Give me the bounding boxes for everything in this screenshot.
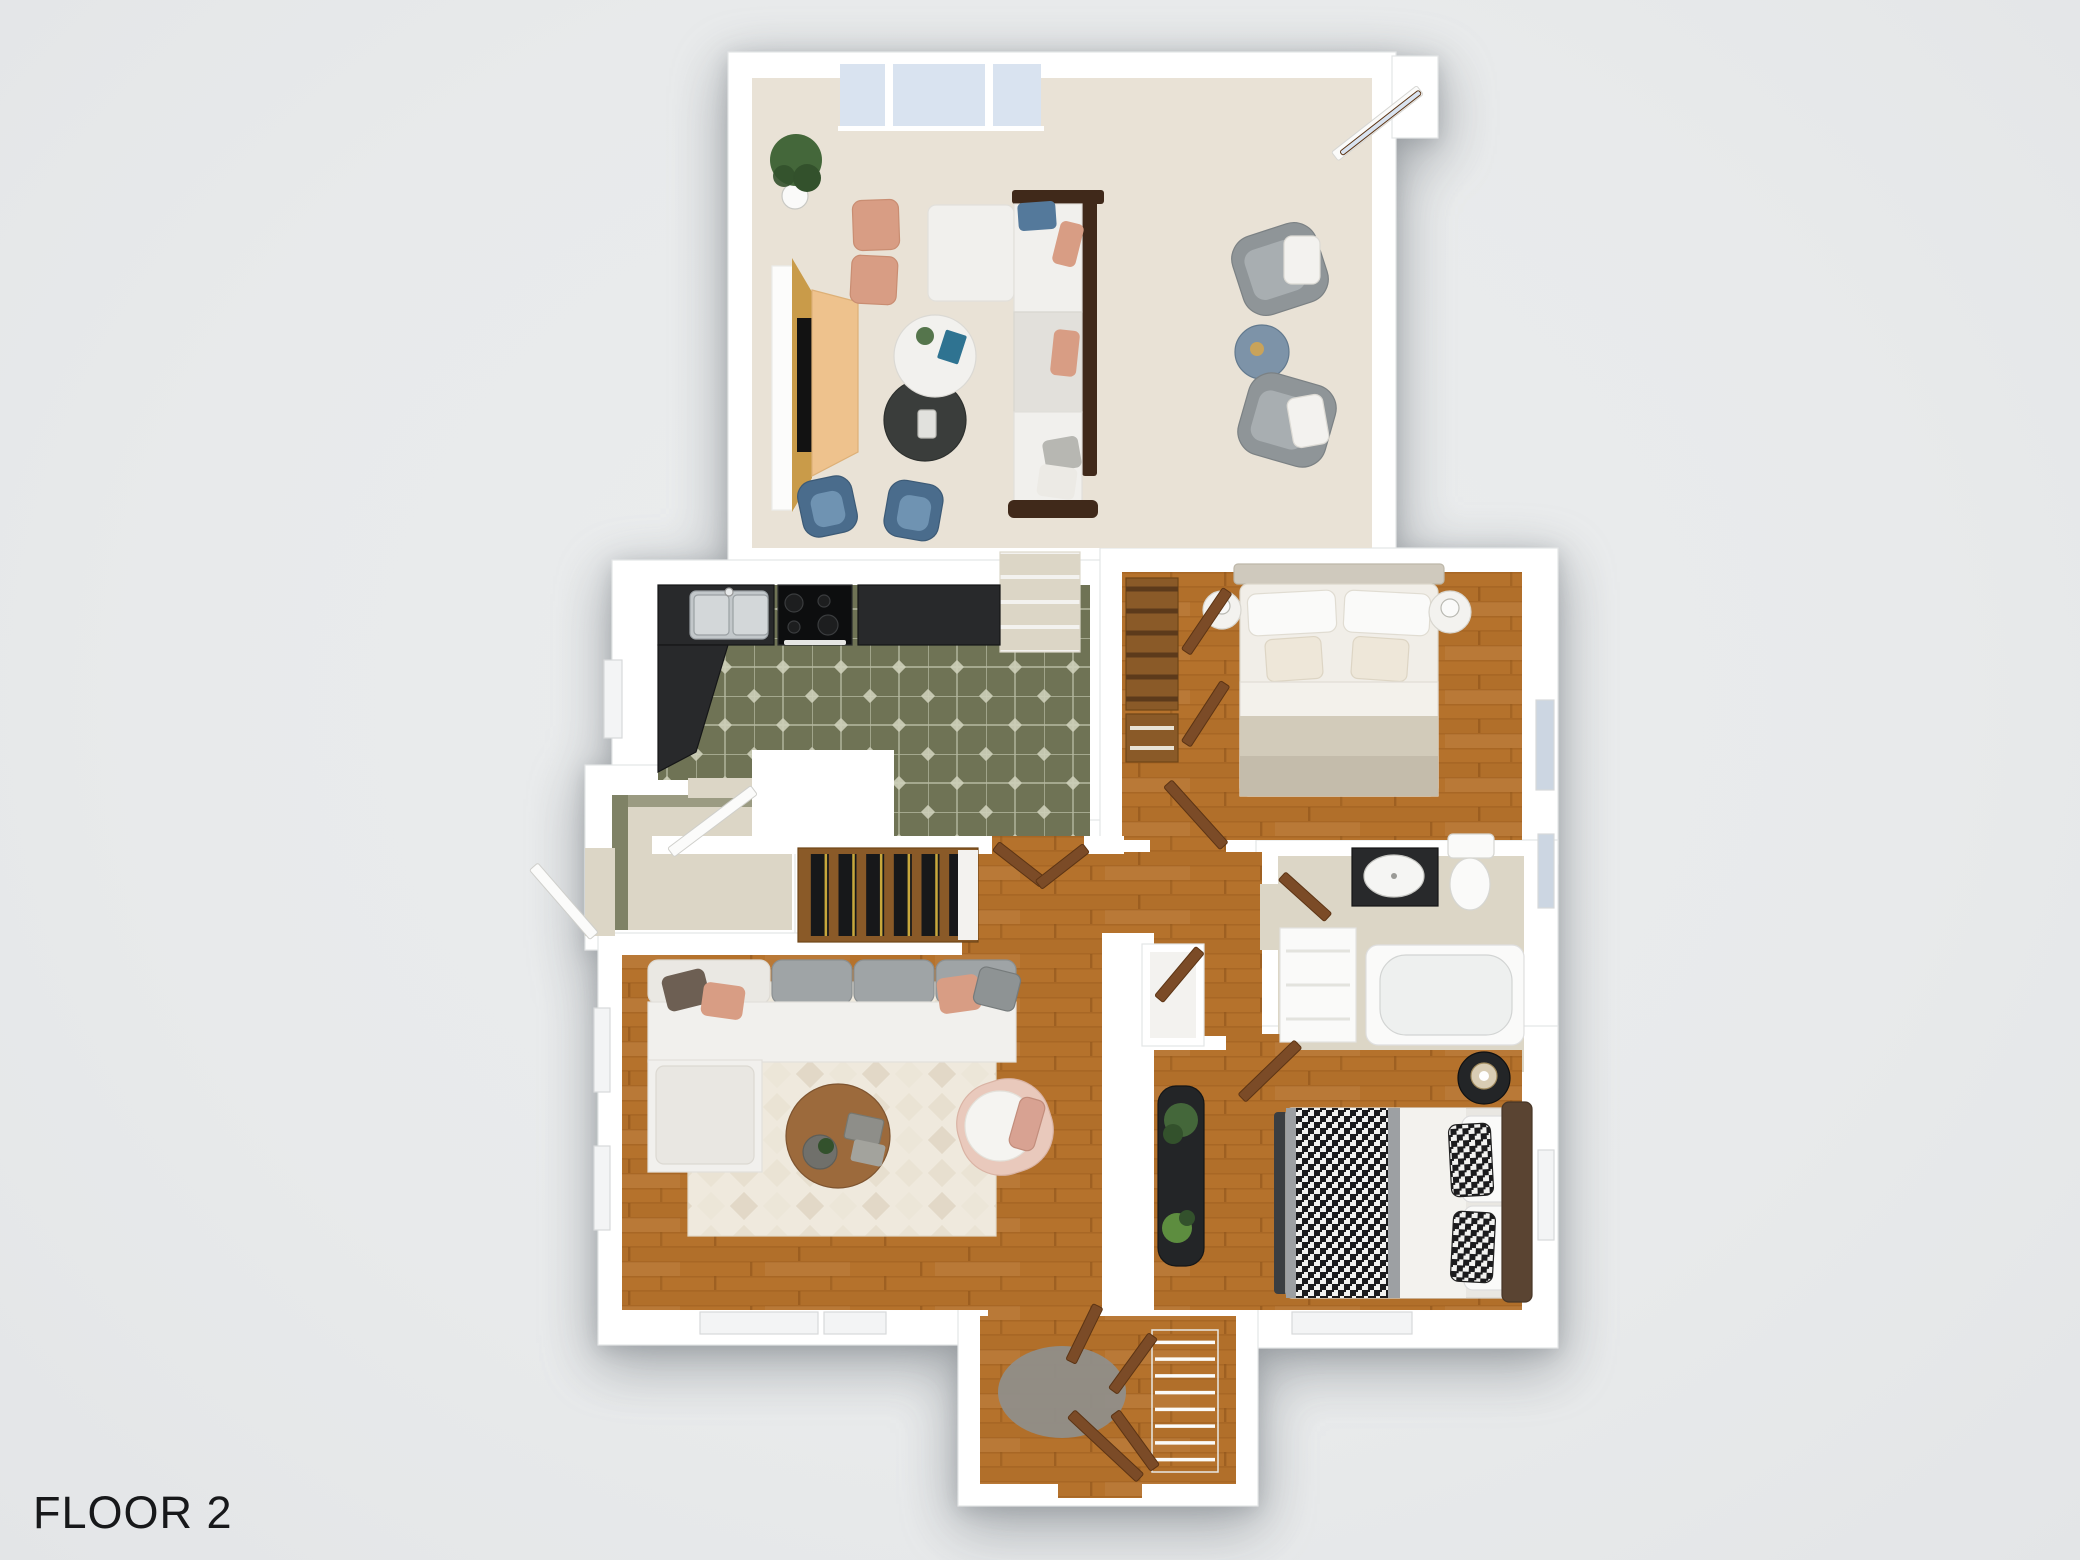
fireplace-column — [772, 266, 794, 510]
sofa1-chaise — [928, 205, 1014, 301]
bedroom1-closet-slats-stripe — [1126, 587, 1178, 592]
gray-chair-2-pillow — [1286, 393, 1330, 448]
coffee-table-marble — [894, 315, 976, 397]
steps-sunroom-treads-stripe — [1000, 604, 1080, 625]
bedroom1-closet-slats-stripe — [1126, 631, 1178, 636]
fsofa-back-2 — [854, 960, 934, 1004]
stair-landing — [958, 850, 978, 940]
floor-label: FLOOR 2 — [33, 1487, 233, 1539]
vanity-drain — [1391, 873, 1397, 879]
table-plant-vase — [803, 1135, 837, 1169]
console-plant-2b — [1179, 1210, 1195, 1226]
entry-rug — [998, 1346, 1126, 1438]
skylight-mullion-2 — [985, 64, 993, 130]
window-bedroom2-right — [1538, 1150, 1554, 1240]
toilet-bowl — [1450, 858, 1490, 910]
wall-kitchen-right — [1084, 836, 1124, 854]
pillow-pink-2 — [1050, 329, 1081, 377]
wire-closet-shelves-stripe — [1155, 1408, 1215, 1412]
linen-shelves-stripe — [1286, 1018, 1350, 1021]
nightstand-3-lamp-top — [1479, 1071, 1489, 1081]
ottoman-2 — [850, 255, 898, 305]
burner-1 — [785, 594, 803, 612]
linen-shelves-stripe — [1286, 950, 1350, 953]
sofa1-rail-right — [1082, 190, 1097, 476]
bedroom1-closet-slats-stripe — [1126, 675, 1178, 680]
faucet — [725, 588, 733, 596]
bed2-trim-1 — [1286, 1108, 1296, 1298]
fsofa-chaise-cushion — [656, 1066, 754, 1164]
pillow-blue — [1017, 201, 1057, 232]
table-plant — [818, 1138, 834, 1154]
steps-sunroom-treads-stripe — [1000, 629, 1080, 650]
burner-4 — [818, 615, 838, 635]
nightstand-2-lamp — [1441, 599, 1459, 617]
bed2-hound-pillow-1 — [1448, 1123, 1494, 1197]
window-family-left-2 — [594, 1146, 610, 1230]
skylight-3 — [993, 64, 1041, 130]
side-table-decor — [1250, 342, 1264, 356]
plant-leaves-2 — [793, 164, 821, 192]
pillow-white — [1036, 464, 1078, 501]
skylight-mullion-1 — [885, 64, 893, 130]
opening-bath — [1260, 884, 1282, 950]
skylight-frame-bottom — [838, 126, 1044, 131]
plant-leaves-3 — [773, 165, 795, 187]
stair-tread-strips-stripe — [880, 854, 883, 936]
window-family-left-1 — [594, 1008, 610, 1092]
bed2-houndstooth — [1292, 1108, 1390, 1298]
wire-closet-shelves-stripe — [1155, 1374, 1215, 1378]
floorplan-canvas — [0, 0, 2080, 1560]
window-bedroom1-right — [1536, 700, 1554, 790]
window-bath-right — [1538, 834, 1554, 908]
wall-stair-enclosure — [752, 750, 894, 838]
console-plant-1b — [1163, 1124, 1183, 1144]
bed1-pillow-1 — [1247, 590, 1337, 637]
sofa1-arm — [1008, 500, 1098, 518]
burner-2 — [788, 621, 800, 633]
bed1-blanket-fold — [1240, 756, 1438, 796]
bedroom1-closet-slats-stripe — [1126, 653, 1178, 658]
linen-shelves-stripe — [1286, 984, 1350, 987]
stair-tread-strips-stripe — [908, 854, 911, 936]
steps-sunroom-treads-stripe — [1000, 579, 1080, 600]
steps-sunroom-treads-stripe — [1000, 554, 1080, 575]
coffee-table-vase — [918, 410, 936, 438]
wire-closet-shelves-stripe — [1155, 1341, 1215, 1345]
window-kitchen-left — [604, 660, 622, 738]
bedroom1-dresser-lines-stripe — [1130, 726, 1174, 730]
wire-closet-shelves-stripe — [1155, 1391, 1215, 1395]
bed1-pillow-3 — [1265, 636, 1324, 682]
bedroom1-dresser-lines-stripe — [1130, 746, 1174, 750]
bed2-headboard — [1502, 1102, 1532, 1302]
bed2-hound-pillow-2 — [1450, 1211, 1496, 1283]
wire-closet-shelves-stripe — [1155, 1357, 1215, 1361]
stair-tread-strips-stripe — [825, 854, 828, 936]
bed1-headboard — [1234, 564, 1444, 584]
gray-chair-1-pillow — [1284, 236, 1320, 284]
kitchen-counter-right — [858, 585, 1000, 645]
fsofa-back-1 — [772, 960, 852, 1004]
bedroom1-dresser — [1126, 714, 1178, 762]
bed1-blanket — [1240, 716, 1438, 760]
toilet-tank — [1448, 834, 1494, 858]
opening-front-door — [1058, 1478, 1142, 1498]
burner-3 — [818, 595, 830, 607]
floorplan-stage: FLOOR 2 — [0, 0, 2080, 1560]
oven-handle — [784, 640, 846, 645]
window-family-bottom-2 — [824, 1312, 886, 1334]
stair-tread-strips-stripe — [935, 854, 938, 936]
opening-family-entry — [988, 1306, 1098, 1328]
bed1-pillow-4 — [1351, 636, 1410, 682]
fpillow-pink-1 — [700, 981, 746, 1021]
wire-closet-shelves-stripe — [1155, 1424, 1215, 1428]
skylight-2 — [893, 64, 987, 130]
bedroom1-closet-slats-stripe — [1126, 697, 1178, 702]
wire-closet-shelves-stripe — [1155, 1458, 1215, 1462]
stove — [778, 585, 852, 645]
bedroom1-closet-slats-stripe — [1126, 609, 1178, 614]
bed1-pillow-2 — [1343, 590, 1431, 636]
window-bedroom2-bottom — [1292, 1312, 1412, 1334]
bedroom1-closet — [1126, 578, 1178, 710]
window-family-bottom-1 — [700, 1312, 818, 1334]
fireplace-hearth — [812, 290, 858, 476]
table-sprig — [916, 327, 934, 345]
skylight-1 — [840, 64, 887, 130]
sink-basin-1 — [694, 595, 729, 635]
wire-closet-shelves-stripe — [1155, 1441, 1215, 1445]
stair-tread-strips-stripe — [852, 854, 855, 936]
sink-basin-2 — [733, 595, 768, 635]
ottoman-1 — [852, 199, 900, 251]
bed2-trim-2 — [1388, 1108, 1400, 1298]
bathtub-inner — [1380, 955, 1512, 1035]
